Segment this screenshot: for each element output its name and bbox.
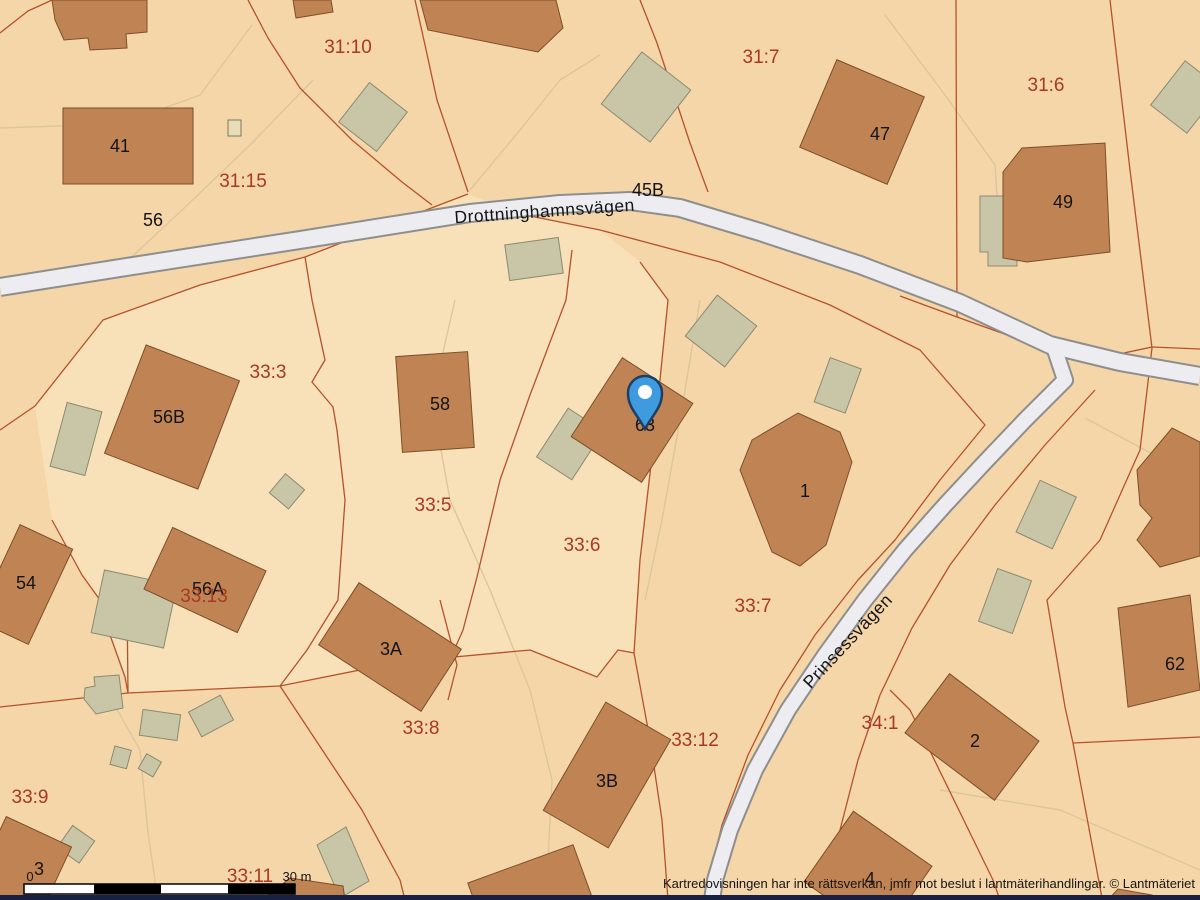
parcel-label: 34:1 — [862, 713, 899, 734]
scale-bar-segment — [228, 884, 295, 894]
parcel-label: 31:15 — [219, 171, 267, 192]
parcel-label: 31:6 — [1028, 75, 1065, 96]
building-label: 56B — [153, 407, 185, 427]
building-label: 3B — [596, 771, 618, 791]
building-label: 62 — [1165, 654, 1185, 674]
parcel-label: 31:7 — [743, 47, 780, 68]
building-label: 1 — [800, 481, 810, 501]
building-label: 2 — [970, 731, 980, 751]
scale-bar-segment — [94, 884, 161, 894]
map-svg: 41 56 45B 47 49 58 56B 56A 54 1 63 3A 3B… — [0, 0, 1200, 900]
parcel-label: 31:10 — [324, 37, 372, 58]
building-label: 47 — [870, 124, 890, 144]
building-label: 3A — [380, 639, 402, 659]
parcel-label: 33:7 — [735, 596, 772, 617]
parcel-label: 33:3 — [250, 362, 287, 383]
scale-bar-distance-label: 30 m — [283, 869, 312, 884]
building-label: 49 — [1053, 192, 1073, 212]
map-canvas[interactable]: 41 56 45B 47 49 58 56B 56A 54 1 63 3A 3B… — [0, 0, 1200, 900]
location-pin-center-dot — [638, 385, 652, 399]
building-label: 56 — [143, 210, 163, 230]
building-label: 45B — [632, 180, 664, 200]
outbuilding-footprint — [505, 237, 563, 280]
building-label: 58 — [430, 394, 450, 414]
building-footprint-62 — [1118, 595, 1200, 707]
parcel-label: 33:5 — [415, 495, 452, 516]
footer-bar — [0, 895, 1200, 900]
building-label: 54 — [16, 573, 36, 593]
outbuilding-footprint — [228, 120, 241, 136]
attribution-text: Kartredovisningen har inte rättsverkan, … — [663, 876, 1195, 891]
parcel-label: 33:6 — [564, 535, 601, 556]
parcel-label: 33:13 — [180, 586, 228, 607]
building-label: 3 — [34, 859, 44, 879]
parcel-label: 33:9 — [12, 787, 49, 808]
building-label: 41 — [110, 136, 130, 156]
parcel-label: 33:8 — [403, 718, 440, 739]
scale-bar-zero-label: 0 — [26, 869, 33, 884]
parcel-label: 33:12 — [671, 730, 719, 751]
outbuilding-footprint — [139, 709, 180, 740]
